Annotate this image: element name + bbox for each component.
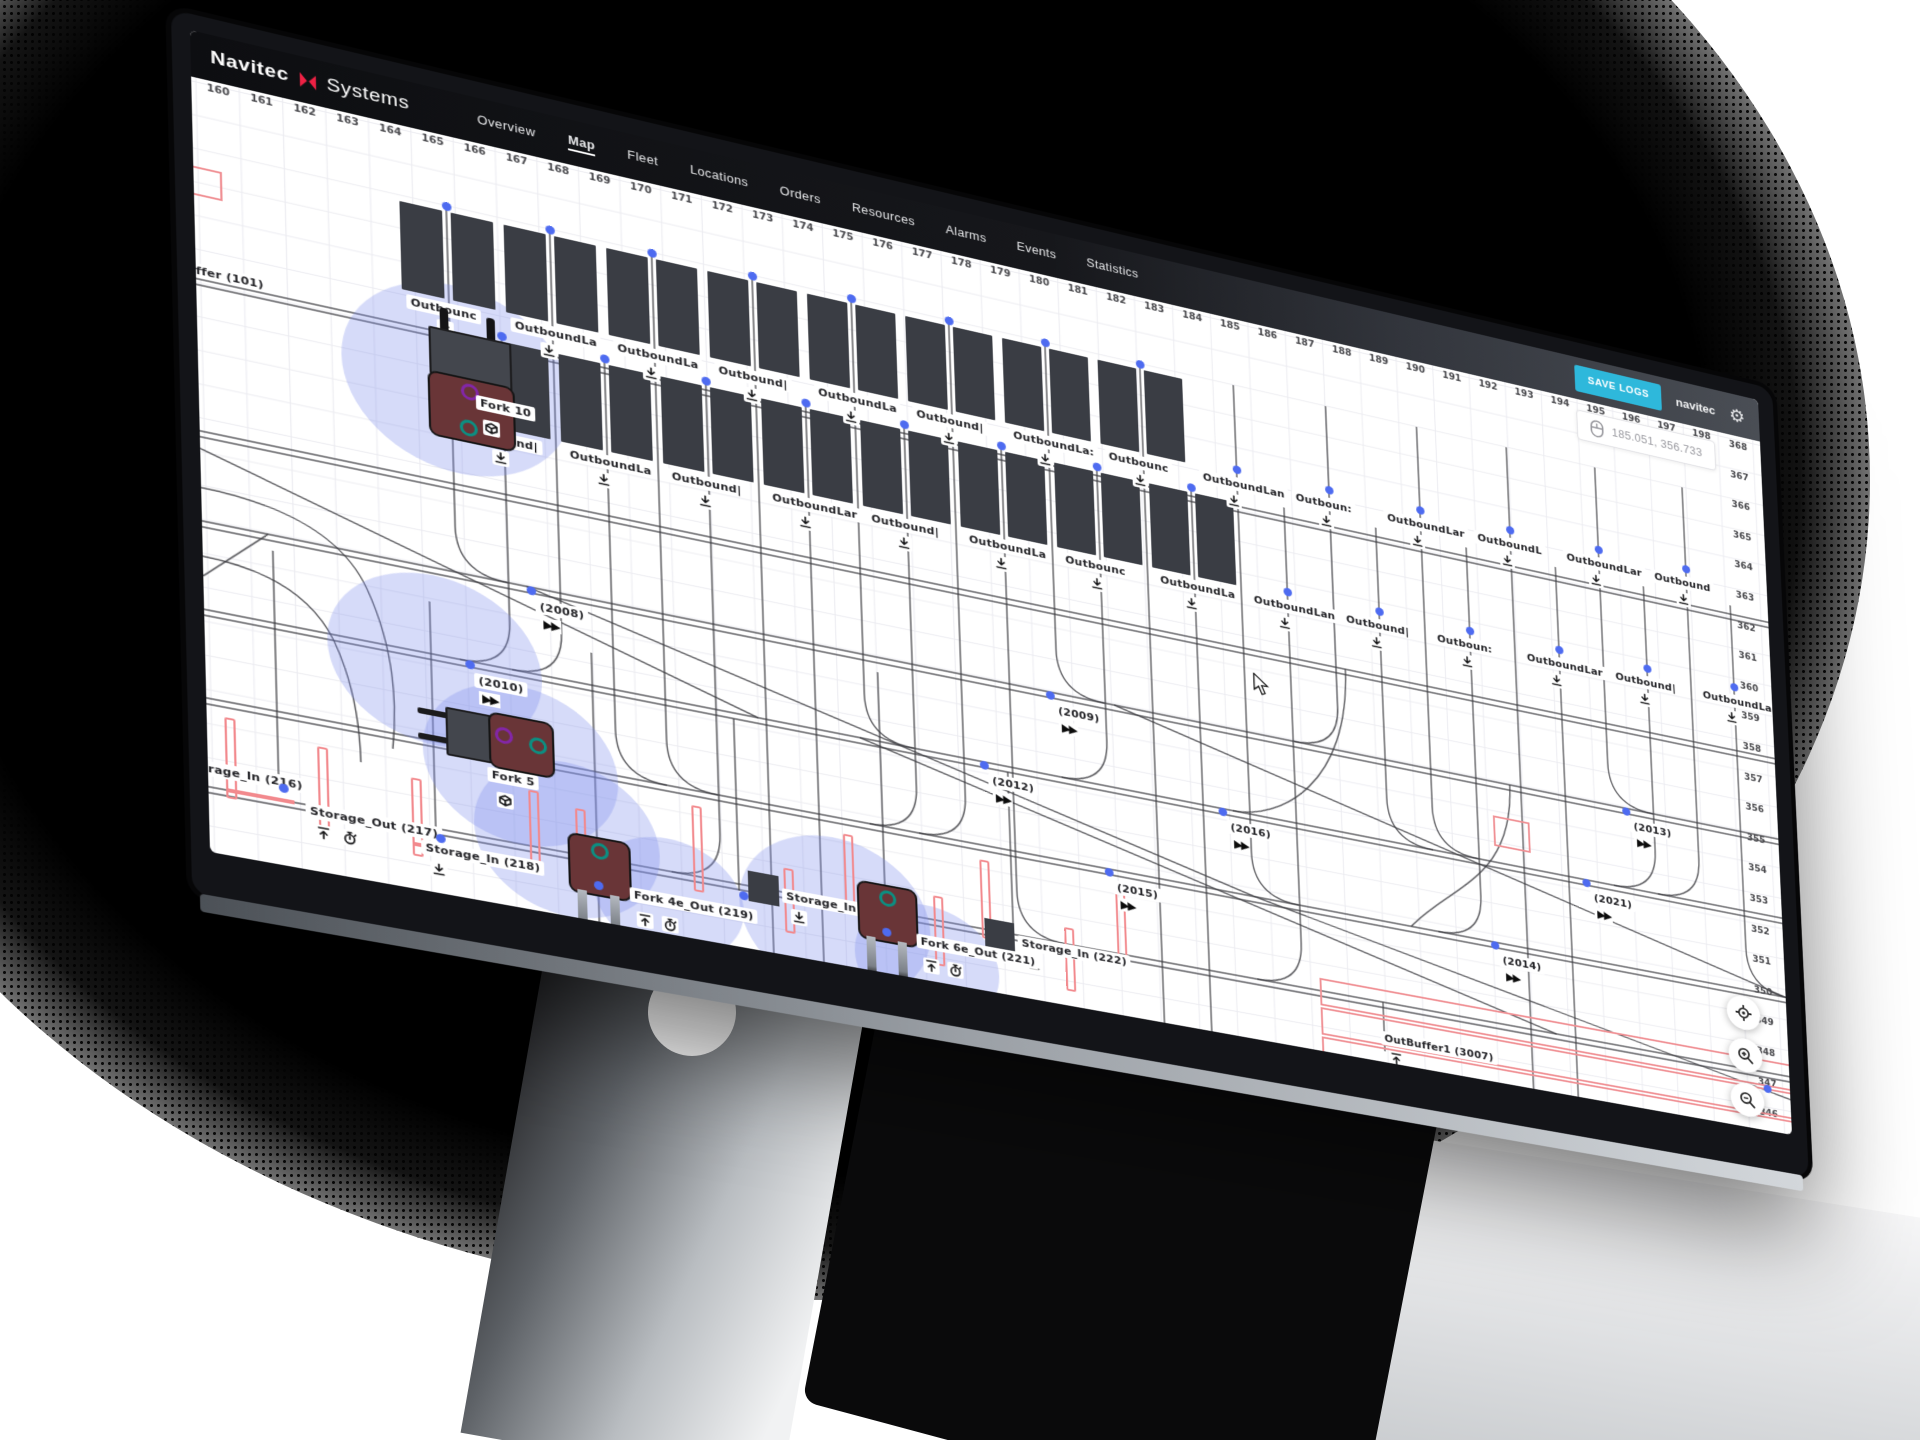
settings-gear-icon[interactable]: ⚙ — [1729, 405, 1746, 426]
timer-icon — [947, 961, 963, 979]
rack-block[interactable] — [504, 225, 549, 322]
rack-block[interactable] — [905, 316, 948, 410]
drop-icon — [1184, 595, 1200, 613]
tab-events[interactable]: Events — [1016, 240, 1056, 264]
drop-icon — [1724, 709, 1739, 726]
rack-block[interactable] — [399, 201, 444, 299]
rack-block[interactable] — [860, 420, 903, 514]
drop-icon — [1589, 572, 1604, 589]
rack-block[interactable] — [761, 398, 804, 493]
tab-overview[interactable]: Overview — [477, 113, 536, 142]
drop-icon — [896, 534, 912, 552]
mouse-icon — [1590, 418, 1604, 439]
drop-icon — [1549, 672, 1564, 689]
tab-statistics[interactable]: Statistics — [1086, 256, 1139, 283]
drop-icon — [1460, 653, 1475, 670]
drop-icon — [1410, 532, 1425, 550]
pickup-icon — [923, 957, 940, 975]
rack-block[interactable] — [1149, 483, 1191, 575]
rack-block[interactable] — [958, 441, 1000, 535]
rack-block[interactable] — [1144, 370, 1186, 462]
rack-block[interactable] — [756, 282, 799, 377]
drop-icon — [1369, 634, 1384, 652]
rack-block[interactable] — [558, 354, 602, 450]
rack-block[interactable] — [1049, 349, 1091, 442]
tab-alarms[interactable]: Alarms — [945, 223, 986, 247]
rack-block[interactable] — [707, 271, 751, 366]
drop-icon — [1500, 552, 1515, 569]
drop-icon — [1637, 691, 1652, 708]
rack-block[interactable] — [1002, 338, 1044, 431]
tab-orders[interactable]: Orders — [780, 184, 821, 208]
drop-icon — [430, 860, 448, 879]
drop-icon — [791, 909, 808, 927]
brand-name-left: Navitec — [210, 47, 289, 87]
brand-name-right: Systems — [326, 75, 409, 115]
drop-icon — [797, 513, 814, 531]
drop-icon — [1676, 591, 1691, 608]
page: 1601611621631641651661671681691701711721… — [0, 0, 1920, 1440]
rack-block[interactable] — [661, 376, 705, 472]
rack-block[interactable] — [855, 305, 898, 399]
pickup-icon — [315, 824, 333, 843]
prongu-part — [439, 307, 448, 330]
rack-block[interactable] — [1098, 360, 1140, 453]
mast-part — [445, 707, 493, 764]
pickup-icon — [637, 911, 654, 929]
timer-icon — [341, 829, 359, 848]
rack-block[interactable] — [1054, 463, 1096, 556]
drop-icon — [993, 555, 1009, 573]
timer-icon — [662, 916, 679, 934]
box-icon — [497, 791, 514, 810]
tab-fleet[interactable]: Fleet — [627, 148, 658, 170]
rack-block[interactable] — [807, 294, 850, 389]
drop-icon — [1277, 615, 1293, 633]
user-name[interactable]: navitec — [1675, 395, 1715, 417]
rack-block[interactable] — [606, 248, 650, 344]
tab-map[interactable]: Map — [568, 133, 596, 156]
tab-resources[interactable]: Resources — [852, 201, 916, 231]
rack-block[interactable] — [451, 213, 496, 310]
mouse-cursor — [1250, 672, 1272, 703]
rack-block[interactable] — [953, 327, 995, 421]
rack-block[interactable] — [554, 236, 598, 333]
tab-locations[interactable]: Locations — [690, 163, 749, 192]
prongu-part — [486, 317, 495, 340]
drop-icon — [1089, 575, 1105, 593]
brand-bowtie-icon — [298, 70, 317, 91]
storage-block[interactable] — [748, 870, 780, 906]
rack-block[interactable] — [656, 259, 700, 355]
